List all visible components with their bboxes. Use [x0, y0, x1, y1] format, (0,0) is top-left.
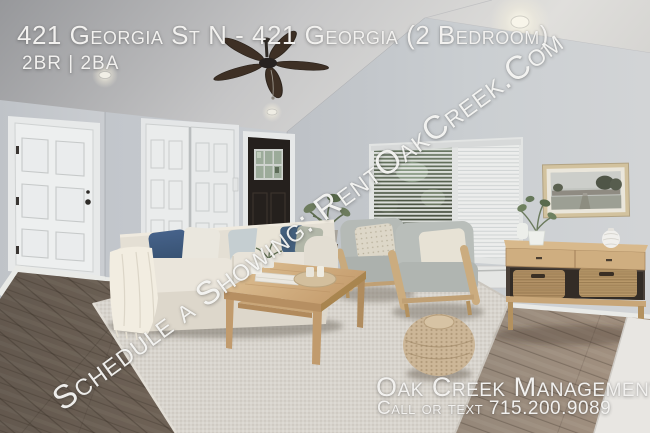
listing-photo: 421 Georgia St N - 421 Georgia (2 Bedroo… [0, 0, 650, 433]
beds-baths-label: 2BR | 2BA [22, 54, 119, 73]
framed-artwork [542, 163, 629, 218]
recessed-light [262, 102, 282, 122]
listing-title: 421 Georgia St N - 421 Georgia (2 Bedroo… [17, 22, 549, 48]
vase-icon [517, 223, 528, 239]
pouf-ottoman [403, 314, 475, 381]
door-hinge-icon [16, 146, 19, 154]
contact-phone: Call or text 715.200.9089 [377, 399, 611, 418]
management-brand: Oak Creek Management [376, 374, 650, 401]
door-hinge-icon [16, 246, 19, 254]
tray-icon [294, 271, 336, 287]
wicker-basket-icon [579, 268, 637, 297]
deadbolt-icon [86, 190, 90, 194]
entry-door [8, 116, 100, 279]
light-switch [233, 178, 238, 191]
door-knob-icon [85, 199, 91, 205]
armchair [392, 221, 484, 321]
door-window-icon [254, 149, 283, 180]
door-hinge-icon [16, 197, 19, 205]
wicker-basket-icon [513, 270, 565, 298]
